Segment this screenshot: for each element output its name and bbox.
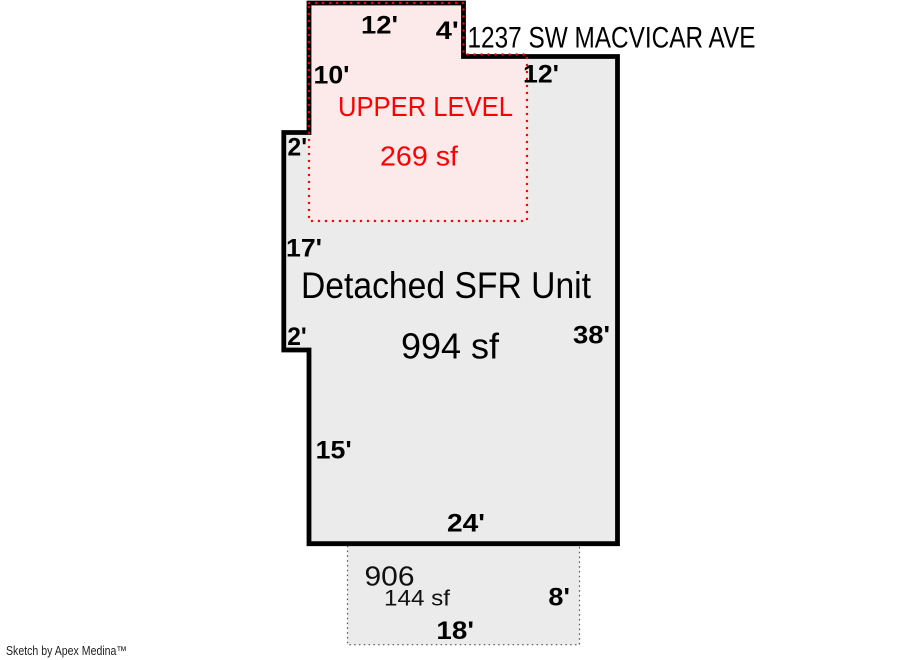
svg-text:17': 17'	[286, 235, 322, 263]
svg-text:Sketch by Apex Medina™: Sketch by Apex Medina™	[6, 644, 127, 658]
svg-text:4': 4'	[436, 17, 459, 45]
svg-text:144 sf: 144 sf	[384, 586, 451, 611]
svg-text:UPPER LEVEL: UPPER LEVEL	[338, 91, 513, 122]
svg-text:269 sf: 269 sf	[380, 141, 458, 172]
svg-text:2': 2'	[288, 133, 308, 161]
svg-text:1237 SW MACVICAR AVE: 1237 SW MACVICAR AVE	[468, 22, 756, 55]
svg-text:18': 18'	[436, 617, 474, 645]
svg-text:Detached SFR Unit: Detached SFR Unit	[301, 264, 592, 306]
svg-text:38': 38'	[573, 321, 610, 349]
svg-text:12': 12'	[523, 61, 559, 89]
svg-text:10': 10'	[314, 61, 350, 89]
svg-text:994 sf: 994 sf	[401, 326, 500, 367]
svg-text:24': 24'	[447, 510, 485, 538]
svg-text:15': 15'	[316, 436, 352, 464]
svg-text:2': 2'	[287, 323, 307, 351]
svg-text:8': 8'	[548, 584, 570, 612]
svg-text:12': 12'	[361, 12, 398, 40]
